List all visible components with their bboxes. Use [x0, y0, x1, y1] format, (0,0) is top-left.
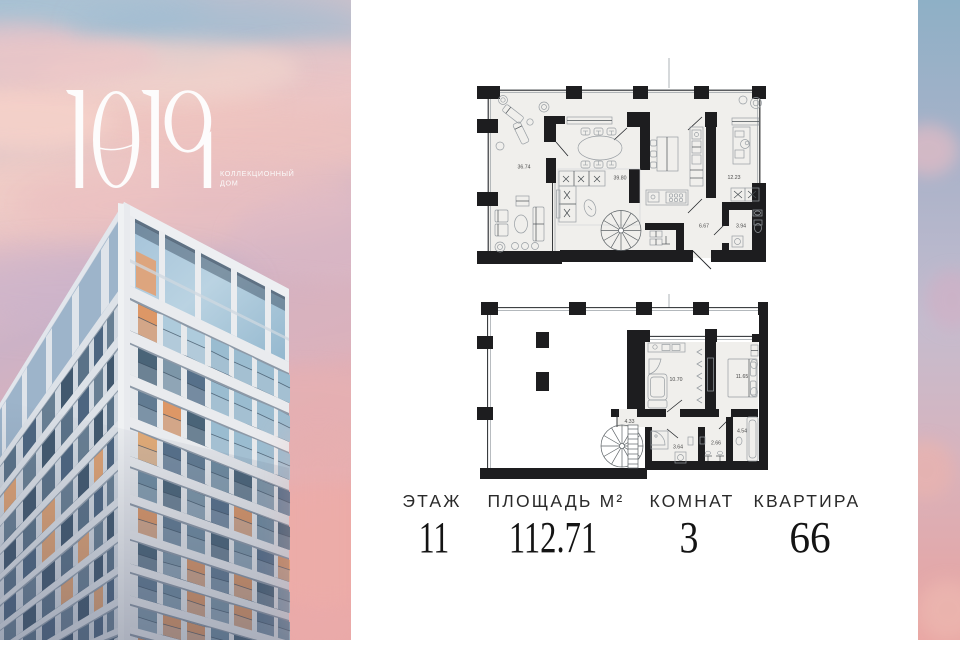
svg-text:ДОМ: ДОМ — [220, 179, 238, 188]
svg-text:6.67: 6.67 — [699, 224, 709, 230]
svg-text:3.64: 3.64 — [673, 445, 683, 451]
svg-text:36.74: 36.74 — [518, 165, 531, 171]
svg-text:3.94: 3.94 — [736, 224, 746, 230]
svg-text:12.23: 12.23 — [728, 175, 741, 181]
svg-text:2.66: 2.66 — [711, 441, 721, 447]
svg-text:11.65: 11.65 — [736, 374, 749, 380]
svg-text:39.80: 39.80 — [614, 176, 627, 182]
svg-text:4.33: 4.33 — [624, 419, 634, 425]
svg-text:4.54: 4.54 — [737, 429, 747, 435]
svg-text:КОЛЛЕКЦИОННЫЙ: КОЛЛЕКЦИОННЫЙ — [220, 169, 294, 178]
svg-text:10.70: 10.70 — [670, 377, 683, 383]
